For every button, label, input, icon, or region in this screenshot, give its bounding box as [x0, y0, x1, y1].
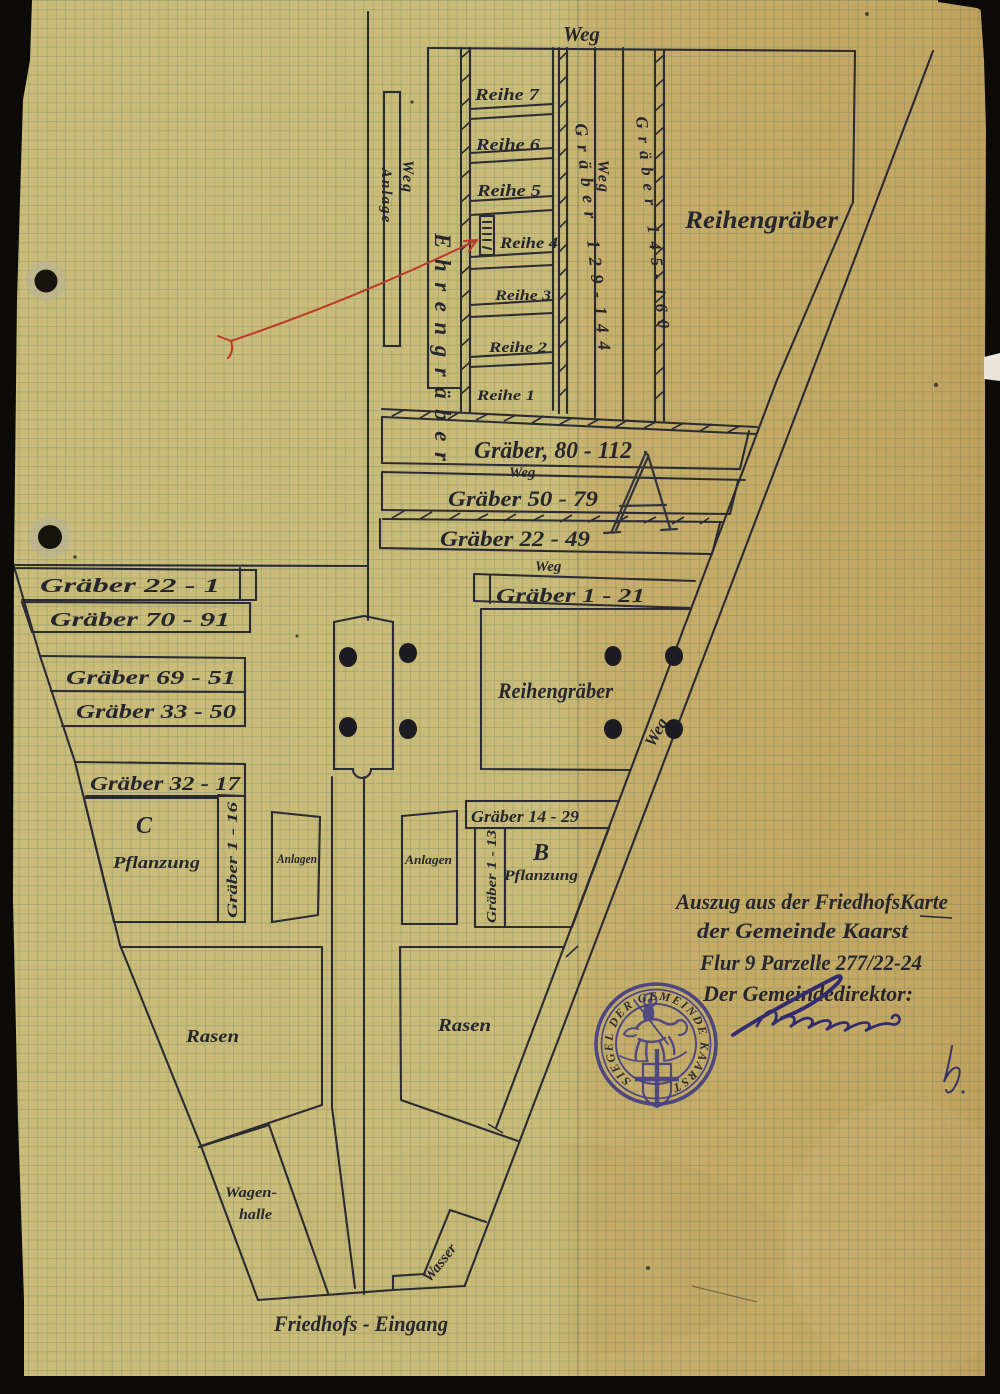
svg-text:Weg: Weg	[563, 22, 600, 46]
svg-text:Flur 9 Parzelle 277/22-24: Flur 9 Parzelle 277/22-24	[699, 950, 922, 975]
svg-text:Gräber, 80 - 112: Gräber, 80 - 112	[474, 438, 632, 464]
svg-text:C: C	[136, 813, 153, 839]
svg-text:Reihengräber: Reihengräber	[684, 207, 838, 234]
svg-text:Reihe 6: Reihe 6	[475, 135, 541, 154]
svg-text:Gräber 70 - 91: Gräber 70 - 91	[50, 609, 230, 631]
svg-text:Auszug aus der FriedhofsKarte: Auszug aus der FriedhofsKarte	[674, 889, 948, 914]
svg-text:Reihengräber: Reihengräber	[497, 678, 613, 703]
svg-text:Gräber 22 - 49: Gräber 22 - 49	[440, 526, 590, 551]
svg-text:Friedhofs - Eingang: Friedhofs - Eingang	[273, 1311, 448, 1336]
svg-text:Reihe 1: Reihe 1	[476, 388, 535, 404]
svg-text:Gräber 50 - 79: Gräber 50 - 79	[448, 486, 598, 511]
svg-text:Anlagen: Anlagen	[404, 852, 452, 867]
svg-text:Rasen: Rasen	[185, 1026, 239, 1046]
svg-text:Gräber 14 - 29: Gräber 14 - 29	[471, 807, 580, 826]
svg-text:B: B	[532, 840, 549, 866]
svg-text:Anlage: Anlage	[378, 167, 394, 224]
svg-text:Gräber 1 - 13: Gräber 1 - 13	[485, 830, 500, 923]
svg-text:Wagen-: Wagen-	[225, 1185, 277, 1201]
svg-text:halle: halle	[239, 1207, 272, 1223]
svg-text:Gräber 33 - 50: Gräber 33 - 50	[76, 701, 236, 723]
svg-text:Reihe 5: Reihe 5	[476, 181, 542, 200]
svg-text:Gräber 22 - 1: Gräber 22 - 1	[40, 575, 220, 597]
svg-text:Gräber 69 - 51: Gräber 69 - 51	[66, 667, 236, 689]
svg-text:Pflanzung: Pflanzung	[504, 868, 579, 884]
svg-text:Reihe 7: Reihe 7	[474, 85, 541, 104]
svg-text:Weg: Weg	[535, 559, 562, 575]
svg-text:Weg: Weg	[509, 465, 536, 481]
svg-text:Pflanzung: Pflanzung	[112, 853, 201, 872]
svg-text:Reihe 4: Reihe 4	[499, 235, 558, 252]
svg-text:Reihe 2: Reihe 2	[488, 340, 548, 356]
svg-text:Gräber 32 - 17: Gräber 32 - 17	[90, 773, 241, 795]
svg-text:Anlagen: Anlagen	[276, 851, 317, 866]
svg-text:Gräber 1 - 21: Gräber 1 - 21	[496, 585, 645, 607]
svg-text:Weg: Weg	[399, 160, 416, 194]
svg-text:der Gemeinde Kaarst: der Gemeinde Kaarst	[697, 918, 909, 943]
svg-text:Gräber 1 - 16: Gräber 1 - 16	[225, 801, 241, 918]
svg-text:Weg: Weg	[594, 160, 612, 195]
svg-text:Rasen: Rasen	[437, 1015, 491, 1035]
svg-text:Reihe 3: Reihe 3	[494, 288, 552, 304]
